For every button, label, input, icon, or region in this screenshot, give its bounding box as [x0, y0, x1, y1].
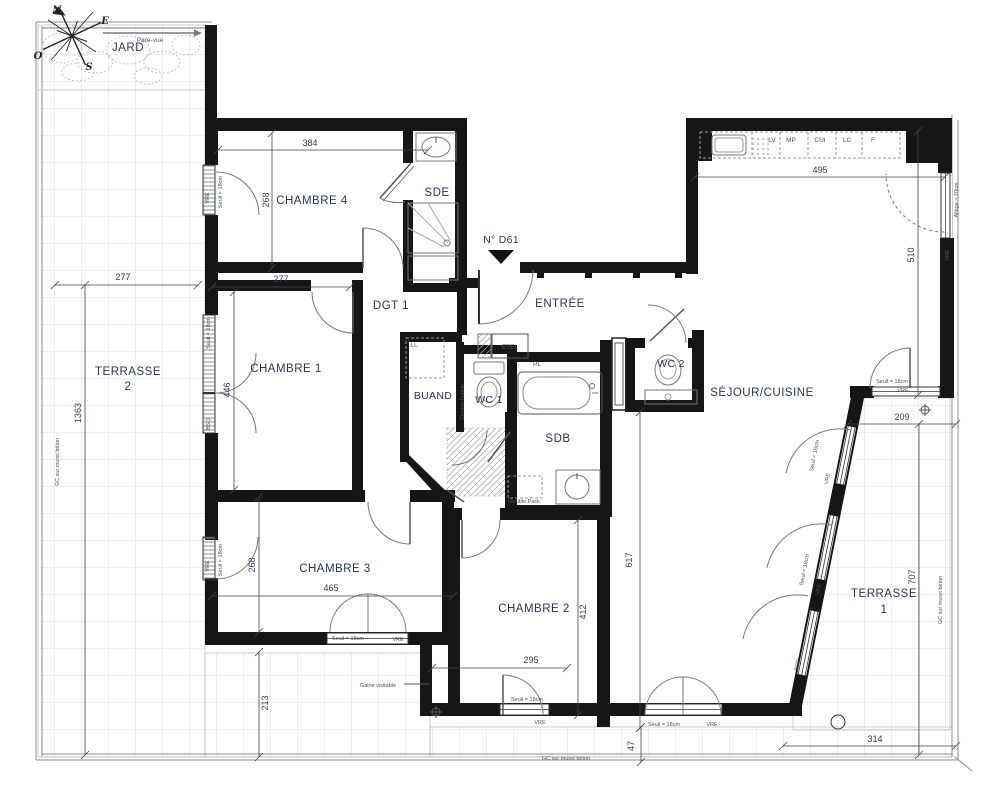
vre-chambre2-s: VRE	[534, 720, 546, 726]
vre-sejour-se: VRE	[897, 388, 909, 394]
allege-east: Allège = 70cm	[954, 182, 960, 217]
dim-sejour-height: 510	[906, 247, 916, 262]
gc-left: GC sur muret béton	[55, 438, 61, 486]
entrance-triangle	[488, 250, 514, 264]
seuil-chambre3: Seuil = 18cm	[218, 544, 224, 576]
pare-vue-label: Pare-vue	[137, 37, 164, 44]
label-terrasse1: TERRASSE	[851, 588, 917, 600]
dim-chambre3-height: 268	[247, 557, 257, 572]
dim-strip: 47	[626, 741, 636, 751]
floor-plan-drawing: 384 268 277 277 446 1363 495 510 209 707…	[0, 0, 994, 800]
dim-chambre3-width: 465	[323, 583, 338, 593]
dim-chambre4-height: 268	[261, 192, 271, 207]
vre-east: VRE	[945, 249, 951, 261]
seuil-living-s: Seuil = 18cm	[648, 722, 680, 728]
dim-chambre4-width: 384	[302, 138, 317, 148]
dim-terrasse2-width: 277	[115, 272, 130, 282]
label-unit-number: N° D61	[483, 234, 519, 246]
dim-terrasse2-height: 1363	[73, 403, 83, 423]
compass-o: O	[34, 51, 43, 62]
label-terrasse2: TERRASSE	[95, 366, 161, 378]
dim-chambre2-width: 295	[523, 655, 538, 665]
seuil-chambre1: Seuil = 18cm	[206, 317, 212, 349]
seuil-chambre4: Seuil = 18cm	[218, 176, 224, 208]
label-chambre1: CHAMBRE 1	[250, 363, 322, 375]
dim-terrasse1-bottom: 314	[867, 734, 882, 744]
label-terrasse2-num: 2	[125, 381, 132, 393]
cloison-fusible-label: Cloison fusible	[460, 384, 466, 420]
kitchen-mp: MP	[786, 137, 796, 144]
gaine-visitable-label: Gaine visitable	[360, 683, 396, 689]
kitchen-lv: LV	[768, 137, 776, 144]
seuil-chambre3-s: Seuil = 18cm	[332, 636, 364, 642]
hall-hatched-area	[447, 428, 510, 496]
dim-chambre2-height: 412	[578, 604, 588, 619]
pl-label: PL	[533, 361, 541, 368]
vre-chambre3-s: VRE	[392, 637, 404, 643]
compass-s: S	[85, 62, 92, 73]
label-buand: BUAND	[414, 390, 452, 402]
seuil-chambre2-s: Seuil = 18cm	[511, 697, 543, 703]
label-sde: SDE	[424, 187, 449, 199]
label-wc1: WC 1	[475, 394, 502, 406]
floor-plan-page: 384 268 277 277 446 1363 495 510 209 707…	[0, 0, 994, 800]
dim-living-height: 617	[624, 552, 634, 567]
label-chambre4: CHAMBRE 4	[276, 195, 348, 207]
label-sejour-cuisine: SÉJOUR/CUISINE	[710, 386, 814, 399]
label-entree: ENTRÉE	[535, 297, 585, 310]
kitchen-f: F	[871, 137, 875, 144]
label-sdb: SDB	[545, 433, 570, 445]
dim-chambre1-height: 446	[222, 382, 232, 397]
compass-e: E	[100, 16, 109, 27]
label-dgt1: DGT 1	[373, 300, 409, 312]
meuble-pack-label: Meuble Pack	[508, 499, 540, 505]
bso-chambre1: BSO	[206, 417, 212, 429]
dim-terrasse2-bottom: 213	[260, 695, 270, 710]
kitchen-lc: LC	[843, 137, 852, 144]
dim-terrasse1-width: 209	[894, 412, 909, 422]
label-chambre3: CHAMBRE 3	[299, 563, 371, 575]
seuil-sejour-se: Seuil = 18cm	[876, 379, 908, 385]
label-chambre2: CHAMBRE 2	[498, 603, 570, 615]
vre-chambre3: VRE	[205, 560, 211, 572]
etel-label: ETEL	[502, 344, 519, 351]
dim-kitchen-width: 495	[812, 165, 827, 175]
kitchen-cui: CUI	[814, 137, 825, 144]
gc-right: GC sur muret béton	[938, 576, 944, 624]
compass-n: N	[51, 5, 62, 16]
dim-terrasse1-height: 707	[907, 569, 917, 584]
gc-bottom: GC sur muret béton	[542, 756, 590, 762]
vre-chambre4: VRE	[205, 192, 211, 204]
label-terrasse1-num: 1	[881, 604, 888, 616]
ll-label: LL	[410, 342, 418, 349]
entry-hatch-box	[478, 334, 491, 358]
label-wc2: WC 2	[657, 358, 684, 370]
dim-chambre1-width: 277	[273, 274, 288, 284]
vre-living-s: VRE	[706, 722, 718, 728]
